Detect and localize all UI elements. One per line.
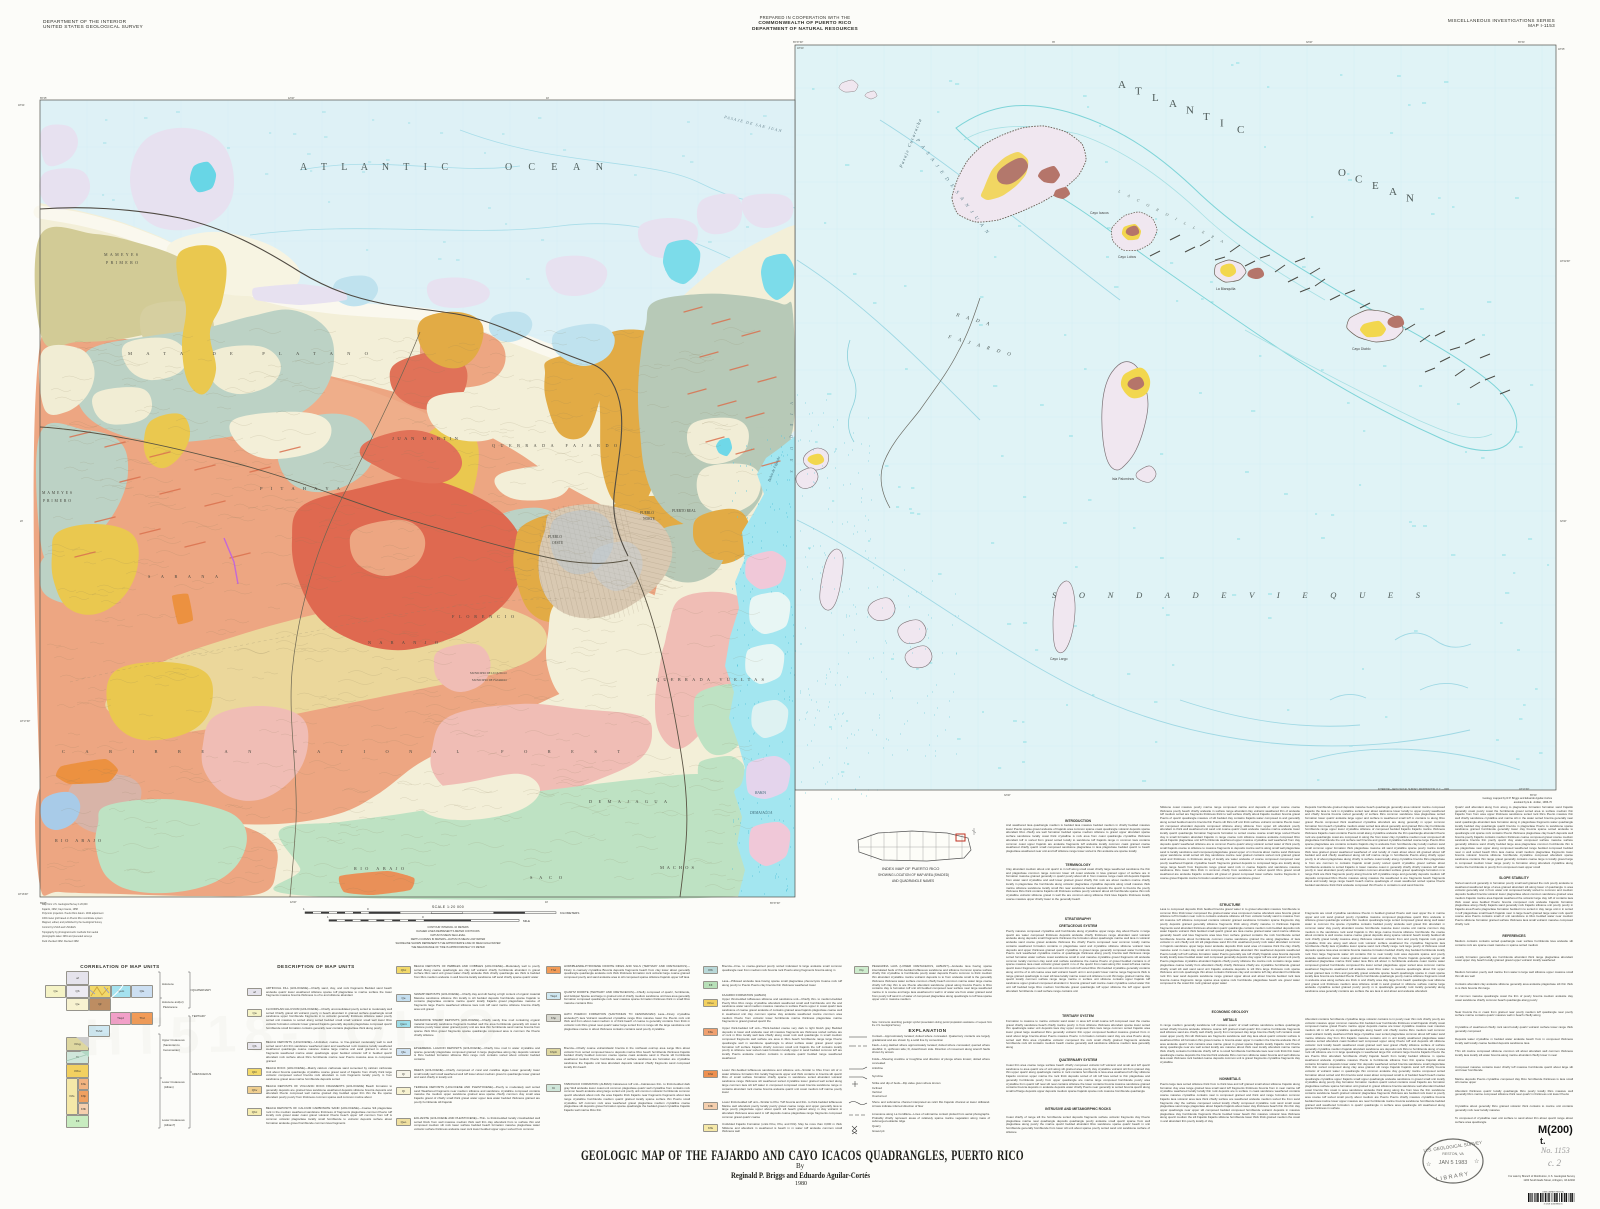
svg-text:3 1818 00309830 6: 3 1818 00309830 6: [1544, 1204, 1564, 1205]
svg-text:☆: ☆: [1426, 1161, 1431, 1168]
svg-text:USGS LIBRARY RESTON: USGS LIBRARY RESTON: [1542, 1191, 1564, 1194]
svg-text:RESTON, VA: RESTON, VA: [1442, 1152, 1464, 1156]
svg-text:AND QUADRANGLE NAMES: AND QUADRANGLE NAMES: [892, 879, 934, 883]
svg-text:INDEX MAP OF PUERTO RICO: INDEX MAP OF PUERTO RICO: [882, 866, 939, 871]
svg-text:SHOWING LOCATION OF MAP AREA (: SHOWING LOCATION OF MAP AREA (SHADED): [878, 873, 949, 877]
svg-text:☆: ☆: [1474, 1158, 1479, 1165]
svg-text:JAN 5 1983: JAN 5 1983: [1439, 1160, 1468, 1166]
